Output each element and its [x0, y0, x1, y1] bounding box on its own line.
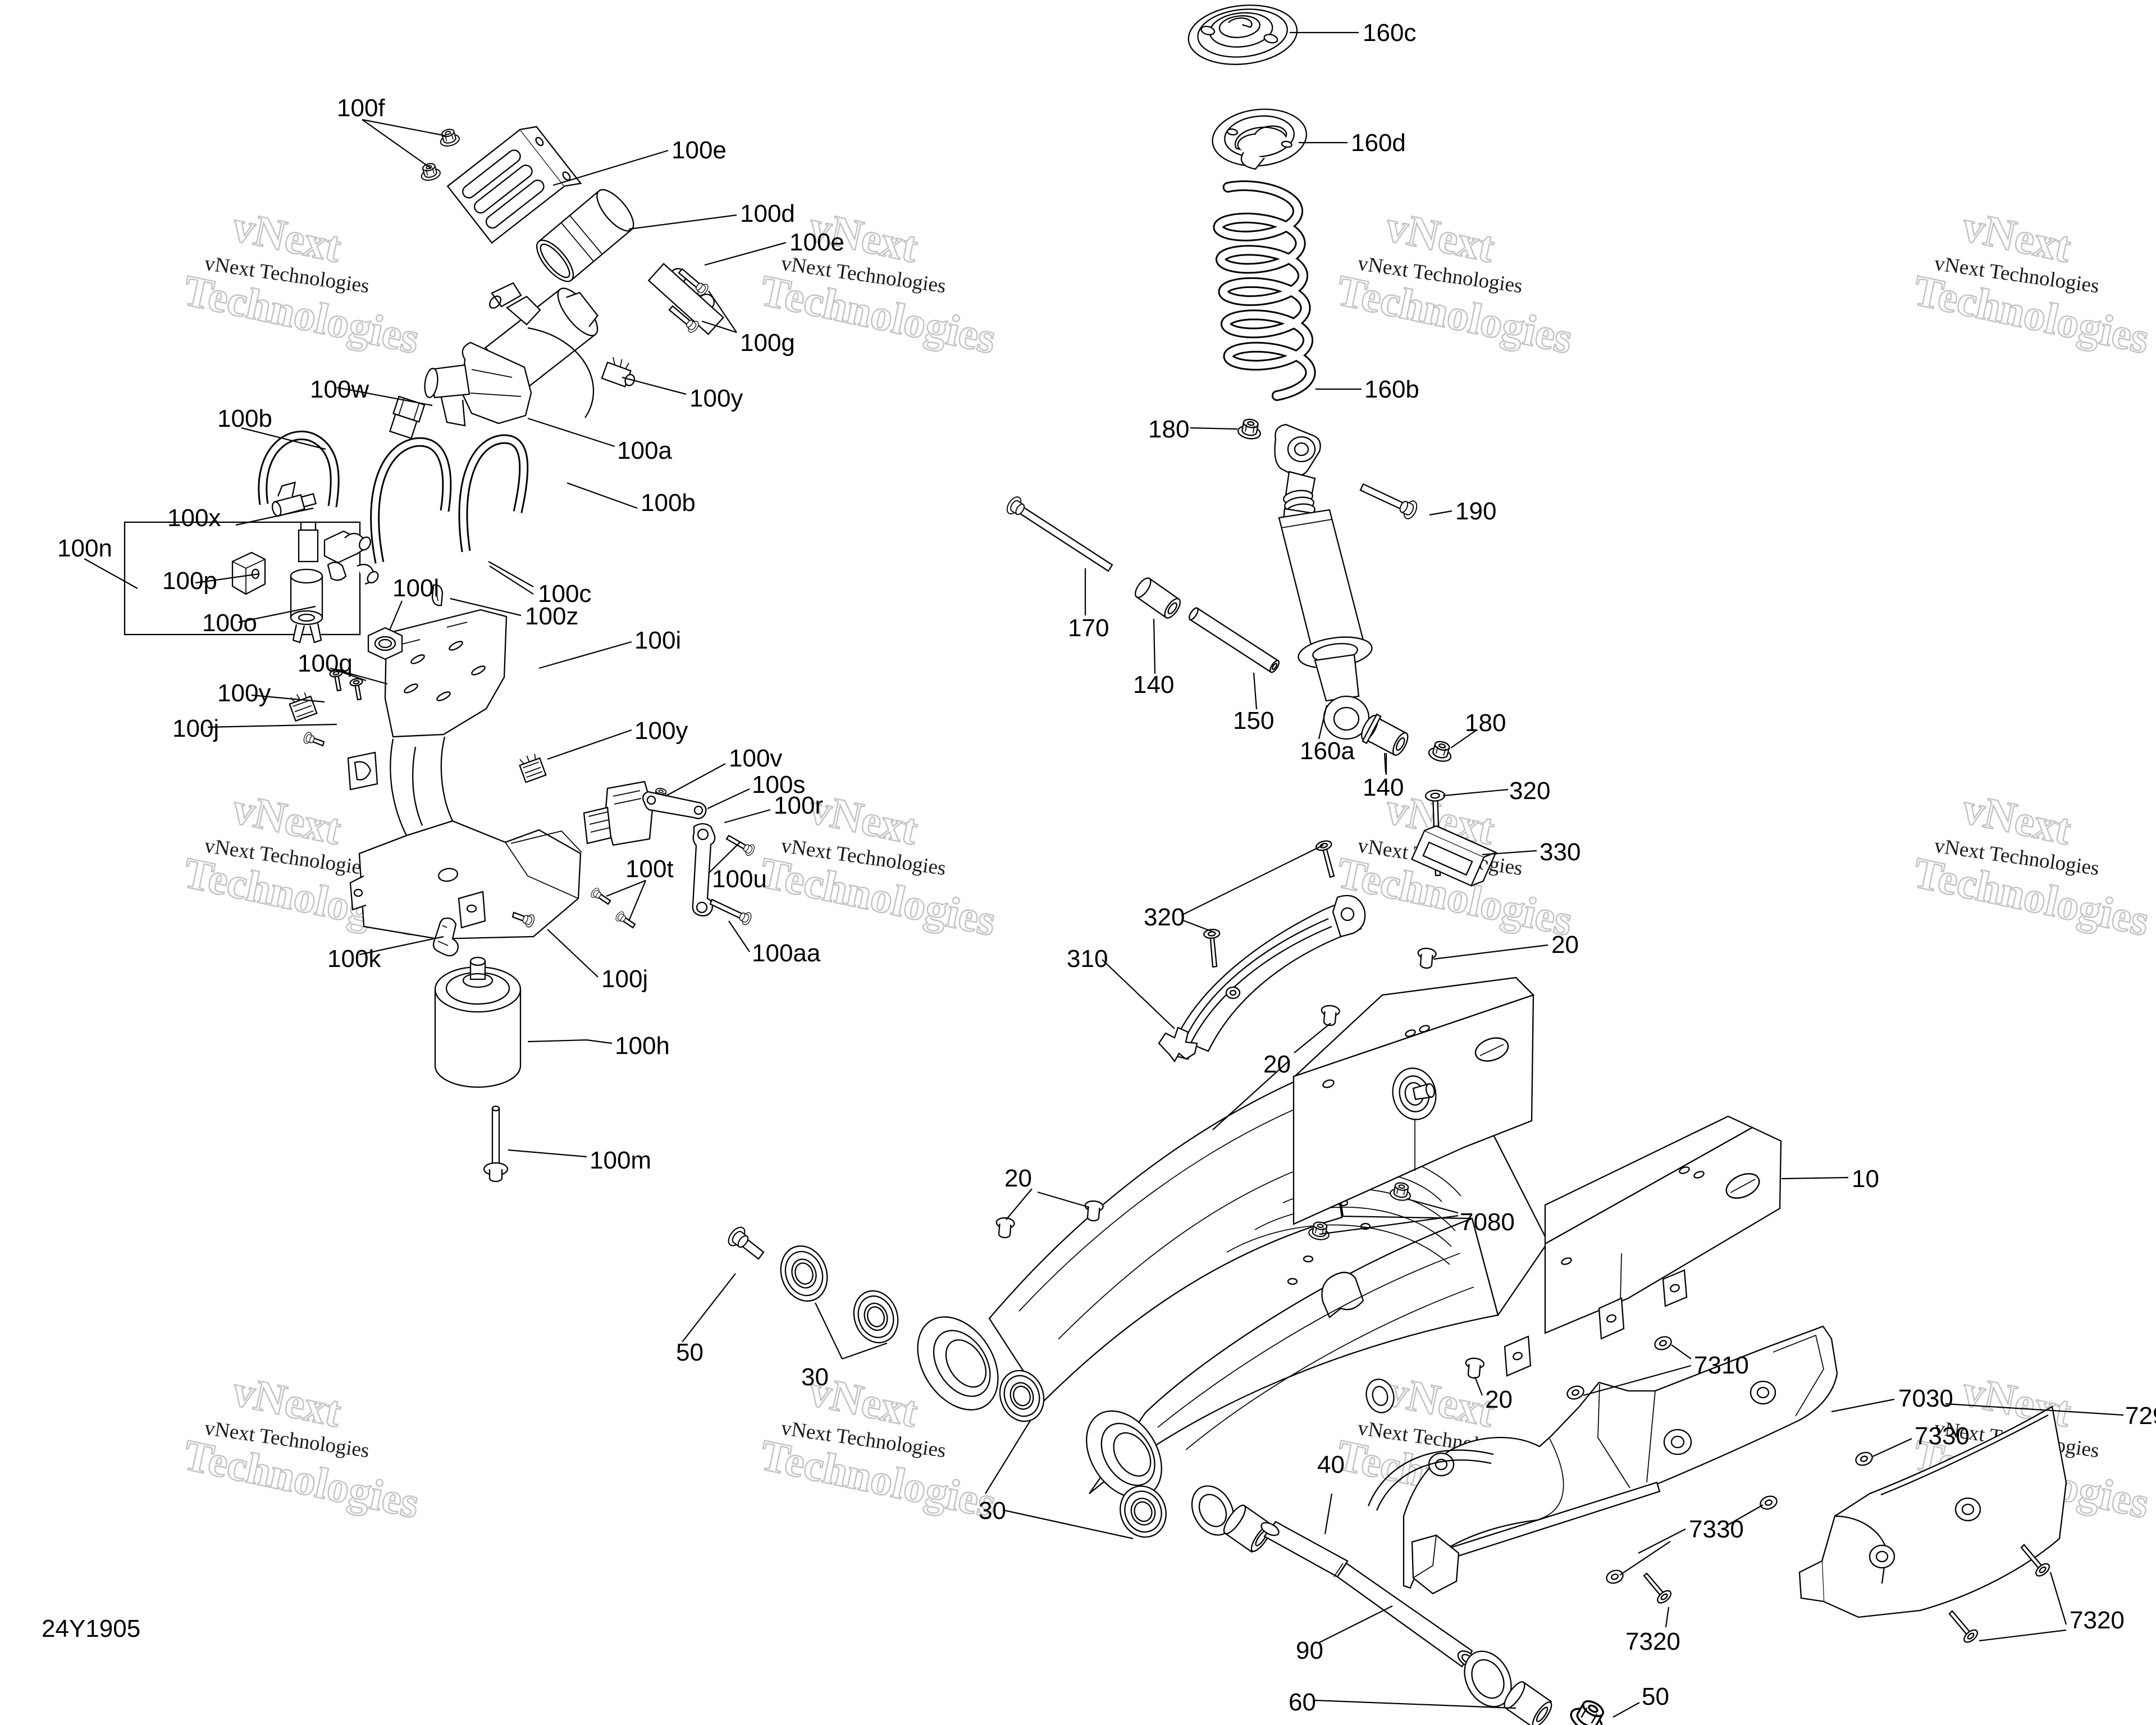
svg-text:50: 50	[1642, 1683, 1669, 1710]
svg-text:100m: 100m	[590, 1147, 651, 1174]
svg-text:100j: 100j	[172, 715, 219, 742]
svg-text:100a: 100a	[617, 437, 672, 464]
svg-text:160a: 160a	[1300, 737, 1355, 765]
svg-text:100d: 100d	[740, 200, 795, 227]
svg-text:7330: 7330	[1689, 1516, 1744, 1543]
svg-text:320: 320	[1509, 777, 1550, 805]
svg-text:160c: 160c	[1363, 19, 1416, 47]
svg-text:100u: 100u	[712, 865, 767, 893]
svg-text:100v: 100v	[729, 745, 782, 772]
svg-text:100t: 100t	[625, 855, 674, 883]
svg-text:160b: 160b	[1364, 376, 1419, 403]
svg-text:7310: 7310	[1694, 1352, 1749, 1379]
svg-text:100b: 100b	[217, 405, 272, 432]
svg-text:100h: 100h	[615, 1032, 670, 1060]
svg-text:7290: 7290	[2125, 1402, 2156, 1430]
svg-text:50: 50	[676, 1339, 704, 1366]
svg-text:100z: 100z	[525, 603, 578, 630]
svg-text:20: 20	[1004, 1165, 1032, 1192]
svg-text:150: 150	[1233, 707, 1274, 734]
svg-text:20: 20	[1485, 1386, 1513, 1413]
svg-text:190: 190	[1455, 498, 1496, 525]
svg-text:30: 30	[979, 1497, 1006, 1525]
svg-text:100k: 100k	[327, 945, 381, 973]
svg-text:180: 180	[1148, 416, 1189, 443]
svg-text:100q: 100q	[298, 650, 353, 677]
svg-text:100r: 100r	[774, 792, 823, 819]
svg-text:100aa: 100aa	[752, 939, 821, 967]
svg-text:7320: 7320	[1625, 1628, 1680, 1655]
svg-text:100f: 100f	[337, 94, 385, 122]
svg-text:320: 320	[1144, 903, 1185, 931]
svg-text:100i: 100i	[634, 627, 681, 654]
svg-text:100g: 100g	[740, 329, 795, 357]
svg-text:180: 180	[1465, 709, 1506, 737]
svg-text:7030: 7030	[1898, 1385, 1953, 1412]
svg-text:7330: 7330	[1915, 1422, 1970, 1450]
svg-text:140: 140	[1363, 774, 1404, 801]
svg-text:100y: 100y	[217, 679, 271, 707]
svg-text:100e: 100e	[672, 136, 727, 164]
svg-text:160d: 160d	[1351, 129, 1406, 157]
svg-text:7080: 7080	[1460, 1208, 1515, 1236]
svg-text:100b: 100b	[641, 489, 696, 517]
svg-text:310: 310	[1067, 945, 1108, 973]
svg-text:100x: 100x	[167, 504, 221, 532]
svg-text:100j: 100j	[601, 965, 648, 993]
svg-text:170: 170	[1068, 614, 1109, 642]
svg-text:140: 140	[1133, 671, 1174, 699]
svg-text:7320: 7320	[2070, 1607, 2125, 1634]
svg-text:330: 330	[1540, 838, 1581, 866]
svg-text:100y: 100y	[634, 717, 688, 745]
svg-text:40: 40	[1317, 1451, 1345, 1478]
svg-text:100n: 100n	[57, 535, 112, 562]
svg-text:24Y1905: 24Y1905	[42, 1615, 140, 1642]
svg-text:10: 10	[1852, 1165, 1879, 1193]
svg-text:20: 20	[1263, 1051, 1291, 1078]
svg-text:30: 30	[801, 1363, 829, 1391]
svg-text:100p: 100p	[162, 567, 217, 595]
svg-text:100y: 100y	[689, 385, 743, 412]
svg-text:100o: 100o	[202, 609, 257, 637]
svg-text:100w: 100w	[310, 376, 369, 403]
svg-text:20: 20	[1551, 931, 1579, 959]
svg-text:100e: 100e	[789, 229, 844, 256]
svg-text:90: 90	[1296, 1637, 1323, 1664]
svg-text:100l: 100l	[392, 574, 439, 602]
svg-text:60: 60	[1289, 1689, 1316, 1716]
